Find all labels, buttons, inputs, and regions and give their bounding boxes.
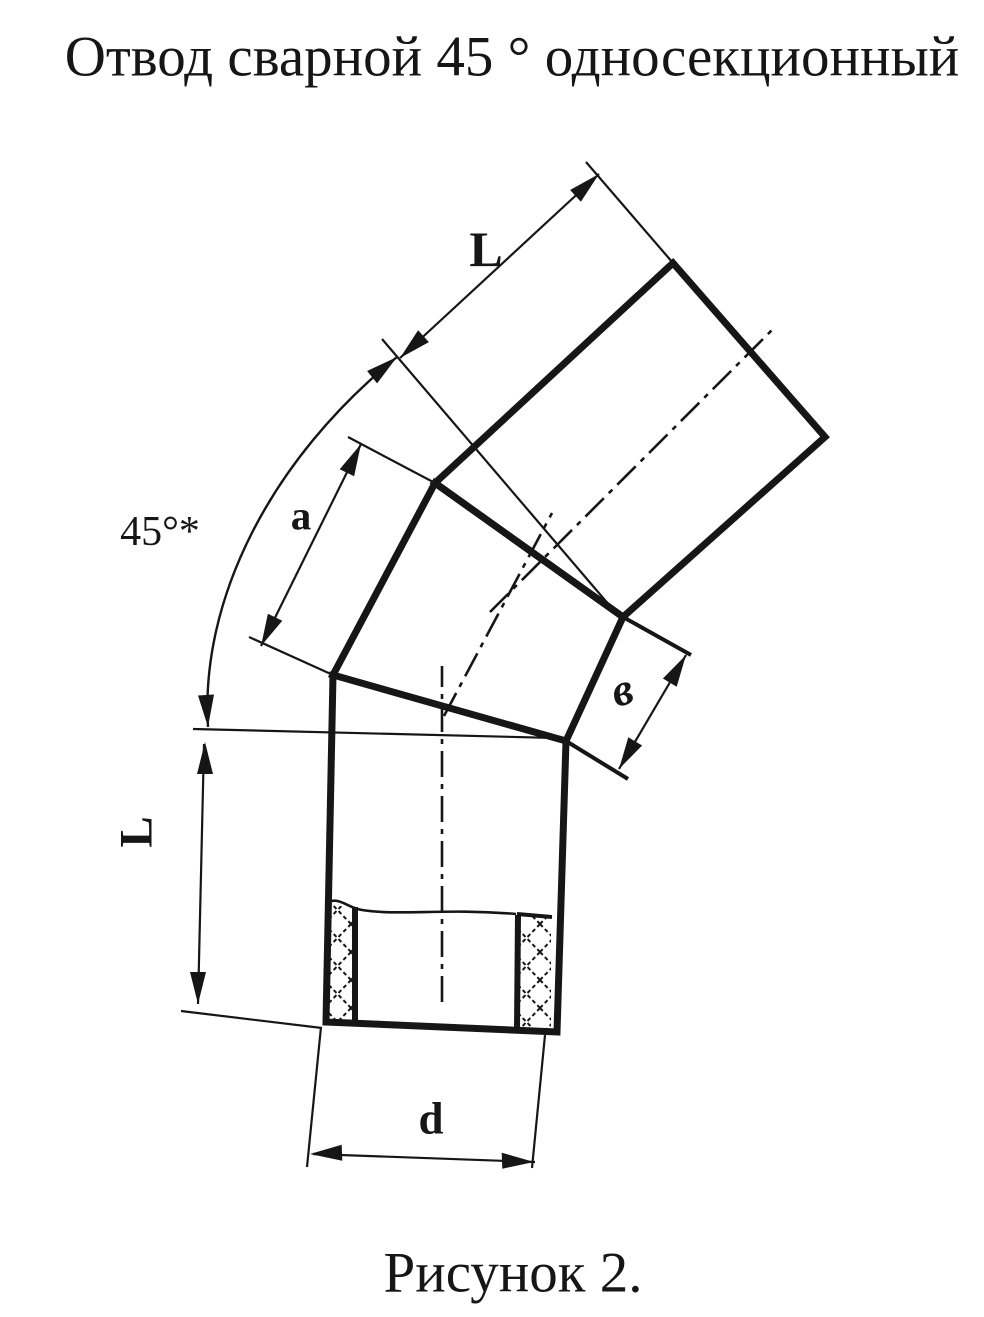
- arrow-v-top: [663, 655, 686, 687]
- dim-line-d: [313, 1154, 535, 1162]
- arrow-L-lower-top: [197, 742, 213, 774]
- arrow-d-right: [502, 1153, 534, 1169]
- dim-label-L-upper: L: [469, 224, 502, 274]
- weld-hatch-right: [517, 914, 552, 1031]
- drawing-sheet: Отвод сварной 45 ° односекционный: [0, 0, 984, 1317]
- arrow-a-top: [340, 444, 361, 476]
- dim-label-L-lower: L: [114, 816, 161, 847]
- arrow-L-lower-bottom: [190, 972, 206, 1004]
- arrow-d-left: [310, 1145, 342, 1161]
- arrow-v-bottom: [619, 737, 642, 769]
- arrow-arc-bottom: [198, 695, 214, 728]
- inner-pipe-walls: [355, 907, 518, 1029]
- dim-label-d: d: [418, 1097, 443, 1142]
- arrow-a-bottom: [261, 614, 282, 646]
- upper-pipe-outline: [435, 263, 825, 617]
- angle-arc: [207, 357, 397, 727]
- dim-line-L-lower: [198, 744, 204, 1004]
- figure-caption: Рисунок 2.: [384, 1245, 643, 1302]
- dim-line-a: [261, 444, 361, 646]
- elbow-diagram: [0, 0, 984, 1317]
- dim-label-a: a: [291, 496, 312, 537]
- pipe-outlines: [326, 263, 825, 1032]
- weld-hatch-left: [328, 905, 355, 1022]
- dim-label-angle: 45°*: [120, 511, 200, 553]
